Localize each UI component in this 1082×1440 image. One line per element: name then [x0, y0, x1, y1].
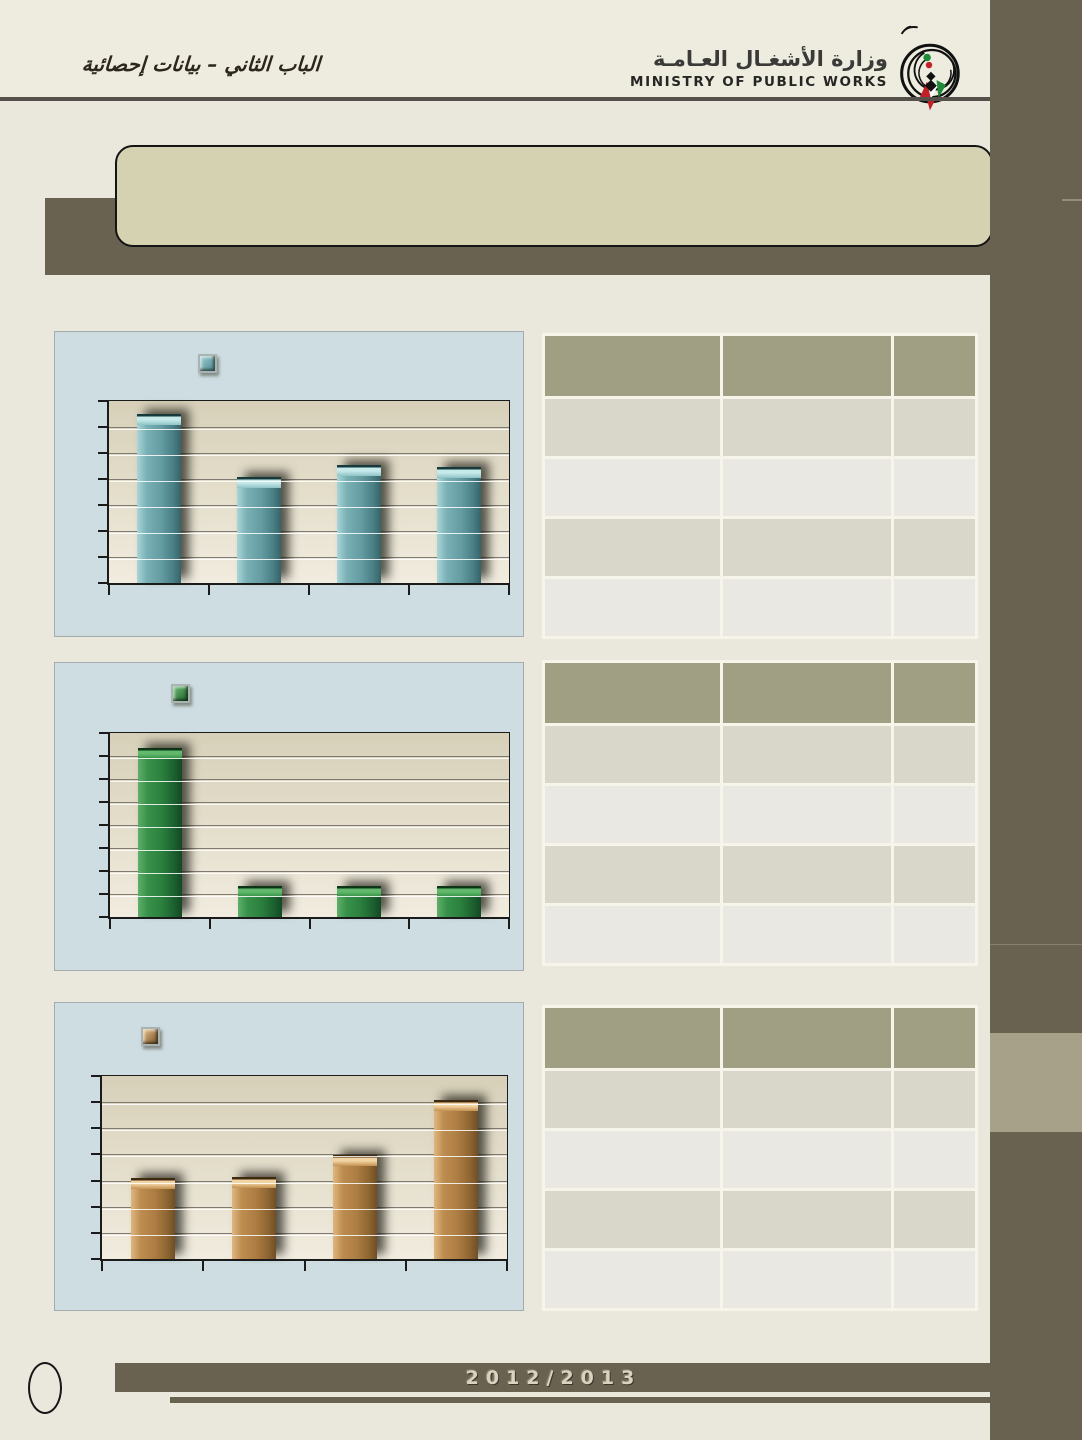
y-axis-tick	[98, 530, 107, 532]
x-axis-tick	[508, 585, 510, 595]
bar-item-3	[337, 465, 381, 583]
bar-item-1	[138, 748, 182, 917]
table-cell	[545, 1071, 720, 1128]
gridline-highlight	[102, 1156, 507, 1157]
y-axis-tick	[91, 1232, 100, 1234]
x-axis-tick	[408, 919, 410, 929]
gridline-highlight	[102, 1183, 507, 1184]
gridline-highlight	[110, 758, 509, 759]
bar-item-4	[437, 467, 481, 583]
table-cell	[545, 1251, 720, 1308]
table-cell	[894, 786, 975, 843]
gridline-highlight	[109, 455, 509, 456]
table-cell	[723, 1071, 891, 1128]
bar-top-cap	[137, 414, 181, 425]
table-cell	[545, 519, 720, 576]
header-divider	[0, 97, 990, 101]
gridline-highlight	[110, 873, 509, 874]
table-cell	[894, 1131, 975, 1188]
table-cell	[545, 786, 720, 843]
bar-body	[437, 478, 481, 583]
footer-bar: 2012/2013	[115, 1363, 992, 1392]
bar-body	[337, 476, 381, 583]
data-table-1	[542, 333, 978, 639]
y-axis-tick	[98, 452, 107, 454]
bar-body	[138, 759, 182, 917]
gridline-highlight	[110, 804, 509, 805]
gridline-highlight	[110, 781, 509, 782]
table-header-cell	[545, 336, 720, 396]
y-axis-tick	[99, 755, 108, 757]
table-cell	[894, 1071, 975, 1128]
bar-item-2	[232, 1177, 276, 1259]
x-axis-tick	[304, 1261, 306, 1271]
gridline-highlight	[109, 533, 509, 534]
table-header-cell	[894, 1008, 975, 1068]
y-axis-tick	[98, 556, 107, 558]
table-cell	[723, 399, 891, 456]
x-axis-tick	[109, 919, 111, 929]
bar-item-3	[337, 886, 381, 917]
legend-swatch-teal-icon	[198, 354, 217, 373]
table-header-cell	[723, 663, 891, 723]
gridline-highlight	[109, 481, 509, 482]
chart-panel-2	[54, 662, 524, 971]
legend-swatch-green-icon	[171, 684, 190, 703]
table-header-cell	[723, 1008, 891, 1068]
y-axis-tick	[99, 732, 108, 734]
table-cell	[545, 459, 720, 516]
gridline-highlight	[102, 1209, 507, 1210]
x-axis-tick	[101, 1261, 103, 1271]
table-cell	[723, 1131, 891, 1188]
table-cell	[723, 726, 891, 783]
bar-body	[232, 1188, 276, 1259]
table-cell	[894, 459, 975, 516]
table-cell	[894, 519, 975, 576]
bar-top-cap	[437, 467, 481, 478]
strip-light-block	[990, 1033, 1082, 1132]
y-axis-tick	[91, 1153, 100, 1155]
table-header-cell	[894, 663, 975, 723]
bar-body	[238, 897, 282, 917]
table-cell	[545, 726, 720, 783]
y-axis-tick	[99, 847, 108, 849]
bar-top-cap	[131, 1178, 175, 1189]
bar-item-1	[137, 414, 181, 583]
table-cell	[545, 1191, 720, 1248]
data-table-2	[542, 660, 978, 966]
table-cell	[723, 786, 891, 843]
gridline-highlight	[110, 850, 509, 851]
x-axis-tick	[506, 1261, 508, 1271]
bar-plot-3	[100, 1075, 508, 1261]
x-axis-tick	[308, 585, 310, 595]
data-table-3	[542, 1005, 978, 1311]
chapter-title: الباب الثاني – بيانات إحصائية	[44, 52, 358, 76]
table-cell	[545, 1131, 720, 1188]
x-axis-tick	[208, 585, 210, 595]
y-axis-tick	[99, 870, 108, 872]
footer-thin-bar	[170, 1397, 990, 1403]
x-axis-tick	[209, 919, 211, 929]
x-axis-tick	[309, 919, 311, 929]
bar-item-2	[237, 477, 281, 583]
y-axis-tick	[98, 400, 107, 402]
bar-body	[337, 897, 381, 917]
gridline-highlight	[109, 559, 509, 560]
y-axis-tick	[98, 582, 107, 584]
y-axis-tick	[99, 778, 108, 780]
bar-body	[237, 488, 281, 583]
footer-year-label: 2012/2013	[466, 1367, 642, 1389]
table-header-cell	[545, 1008, 720, 1068]
table-cell	[894, 1191, 975, 1248]
y-axis-tick	[98, 504, 107, 506]
gridline-highlight	[102, 1235, 507, 1236]
ministry-header: وزارة الأشغـال العـامـة MINISTRY OF PUBL…	[600, 20, 962, 116]
bar-item-3	[333, 1155, 377, 1259]
bar-body	[333, 1166, 377, 1259]
y-axis-tick	[91, 1180, 100, 1182]
table-cell	[545, 906, 720, 963]
table-cell	[545, 579, 720, 636]
bar-item-4	[437, 886, 481, 917]
gridline-highlight	[110, 896, 509, 897]
gridline-highlight	[110, 827, 509, 828]
bar-top-cap	[434, 1100, 478, 1111]
y-axis-tick	[99, 801, 108, 803]
y-axis-tick	[99, 916, 108, 918]
x-axis-tick	[508, 919, 510, 929]
gridline-highlight	[102, 1104, 507, 1105]
chart-panel-1	[54, 331, 524, 637]
y-axis-tick	[91, 1101, 100, 1103]
y-axis-tick	[91, 1258, 100, 1260]
strip-accent-dash	[1062, 199, 1082, 201]
gridline-highlight	[109, 429, 509, 430]
gridline-highlight	[102, 1130, 507, 1131]
legend-swatch-brown-icon	[141, 1027, 160, 1046]
bar-item-2	[238, 886, 282, 917]
x-axis-tick	[108, 585, 110, 595]
bar-top-cap	[337, 465, 381, 476]
gridline-highlight	[109, 507, 509, 508]
table-header-cell	[723, 336, 891, 396]
table-cell	[723, 906, 891, 963]
table-cell	[545, 399, 720, 456]
table-cell	[723, 579, 891, 636]
ministry-name-arabic: وزارة الأشغـال العـامـة	[653, 47, 888, 71]
table-cell	[894, 906, 975, 963]
bar-body	[437, 897, 481, 917]
strip-accent-line	[990, 944, 1082, 945]
bar-body	[434, 1111, 478, 1259]
table-header-cell	[894, 336, 975, 396]
table-cell	[723, 459, 891, 516]
x-axis-tick	[405, 1261, 407, 1271]
table-cell	[894, 579, 975, 636]
chart-panel-3	[54, 1002, 524, 1311]
bar-plot-2	[108, 732, 510, 919]
x-axis-tick	[408, 585, 410, 595]
table-cell	[545, 846, 720, 903]
table-cell	[894, 1251, 975, 1308]
y-axis-tick	[91, 1075, 100, 1077]
bar-plot-1	[107, 400, 510, 585]
y-axis-tick	[98, 478, 107, 480]
right-margin-strip	[990, 0, 1082, 1440]
table-cell	[894, 399, 975, 456]
x-axis-tick	[202, 1261, 204, 1271]
bar-body	[131, 1189, 175, 1259]
bar-item-1	[131, 1178, 175, 1259]
ministry-logo-icon	[896, 20, 962, 116]
table-cell	[894, 726, 975, 783]
report-page: الباب الثاني – بيانات إحصائية وزارة الأش…	[0, 0, 1082, 1440]
y-axis-tick	[98, 426, 107, 428]
table-header-cell	[545, 663, 720, 723]
y-axis-tick	[99, 893, 108, 895]
title-banner	[115, 145, 993, 247]
page-number-oval	[28, 1362, 62, 1414]
table-cell	[723, 1191, 891, 1248]
table-cell	[723, 846, 891, 903]
y-axis-tick	[91, 1127, 100, 1129]
table-cell	[723, 1251, 891, 1308]
y-axis-tick	[99, 824, 108, 826]
table-cell	[723, 519, 891, 576]
y-axis-tick	[91, 1206, 100, 1208]
bar-top-cap	[237, 477, 281, 488]
ministry-name-block: وزارة الأشغـال العـامـة MINISTRY OF PUBL…	[630, 47, 888, 90]
table-cell	[894, 846, 975, 903]
ministry-name-english: MINISTRY OF PUBLIC WORKS	[630, 74, 888, 90]
